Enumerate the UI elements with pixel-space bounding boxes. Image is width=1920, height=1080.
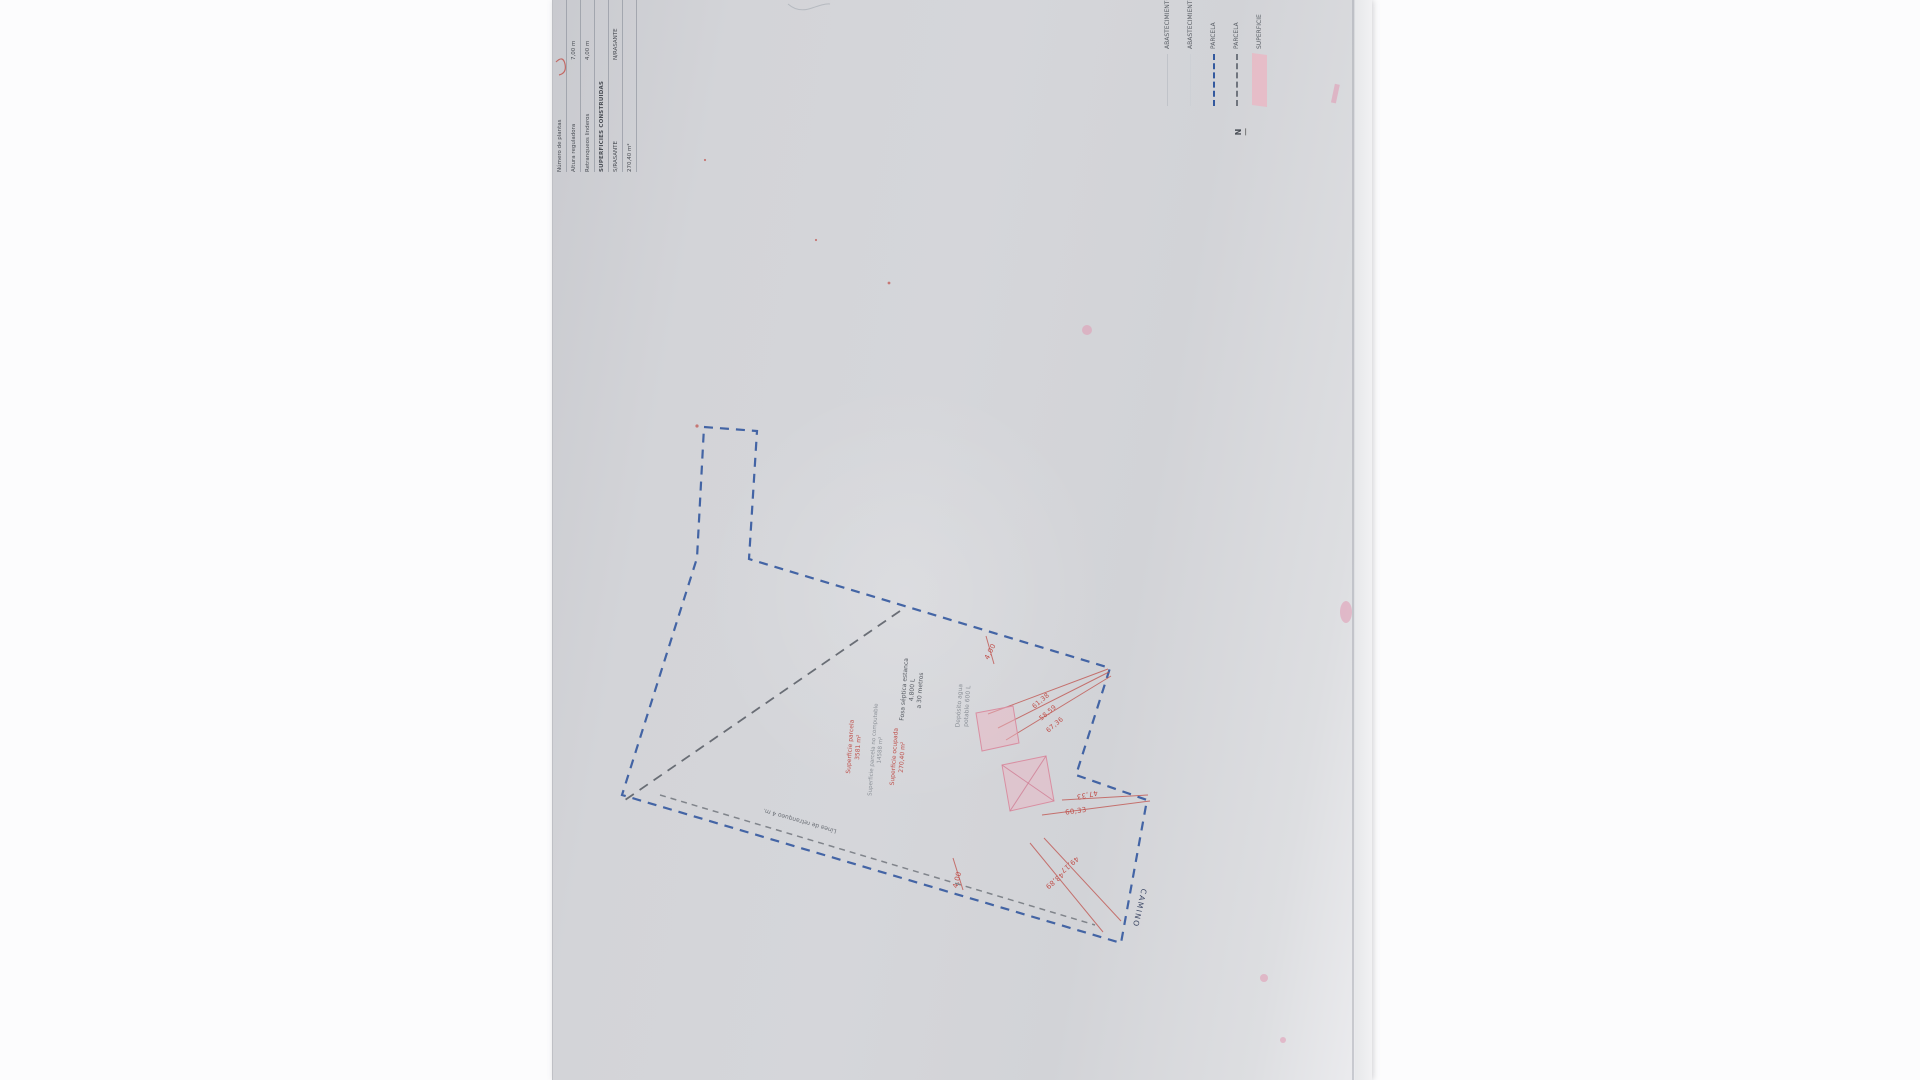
plan-photo: Número de plantas Altura reguladora 7,00… — [0, 0, 1920, 1080]
table-row: Altura reguladora 7,00 m — [567, 0, 581, 172]
row-label: Altura reguladora — [571, 60, 577, 172]
legend-label: PARCELA — [1210, 22, 1217, 49]
table-row: S/RASANTE N/RASANTE — [609, 0, 623, 172]
col-header: N/RASANTE — [613, 0, 619, 60]
row-label: Número de plantas — [557, 60, 563, 172]
utility-line-symbol — [1167, 54, 1168, 106]
north-arrow-icon: N — [1234, 129, 1246, 136]
water-tank-label: Depósito agua potable 600 L — [954, 684, 973, 729]
legend-label: ABASTECIMIENTO — [1164, 0, 1171, 49]
row-value: 270,40 m² — [627, 60, 633, 172]
table-row: Número de plantas — [553, 0, 567, 172]
legend: ABASTECIMIENTO ABASTECIMIENTO PARCELA PA… — [1156, 0, 1271, 106]
boundary-line-symbol — [1213, 54, 1215, 106]
row-value: 4,00 m — [585, 0, 591, 60]
legend-item: SUPERFICIE — [1248, 0, 1271, 106]
surface-swatch-symbol — [1252, 53, 1267, 107]
legend-item: ABASTECIMIENTO — [1179, 0, 1202, 106]
row-value: 7,00 m — [571, 0, 577, 60]
legend-item: PARCELA — [1202, 0, 1225, 106]
legend-label: ABASTECIMIENTO — [1187, 0, 1194, 49]
spec-table: Número de plantas Altura reguladora 7,00… — [553, 0, 637, 172]
utility-line-symbol — [1190, 54, 1191, 106]
parcel-drawing — [0, 0, 1920, 1080]
legend-item: PARCELA — [1225, 0, 1248, 106]
table-row: 270,40 m² — [623, 0, 637, 172]
legend-item: ABASTECIMIENTO — [1156, 0, 1179, 106]
table-row: Retranqueos linderos 4,00 m — [581, 0, 595, 172]
setback-line-symbol — [1236, 54, 1238, 106]
septic-tank-label: Fosa séptica estanca 4.800 L a 30 metros — [899, 658, 928, 722]
col-header: S/RASANTE — [613, 60, 619, 172]
legend-label: PARCELA — [1233, 22, 1240, 49]
setback-line — [660, 795, 1095, 925]
row-label: Retranqueos linderos — [585, 60, 591, 172]
legend-label: SUPERFICIE — [1256, 14, 1263, 49]
table-section-header: SUPERFICIES CONSTRUIDAS — [595, 0, 609, 172]
